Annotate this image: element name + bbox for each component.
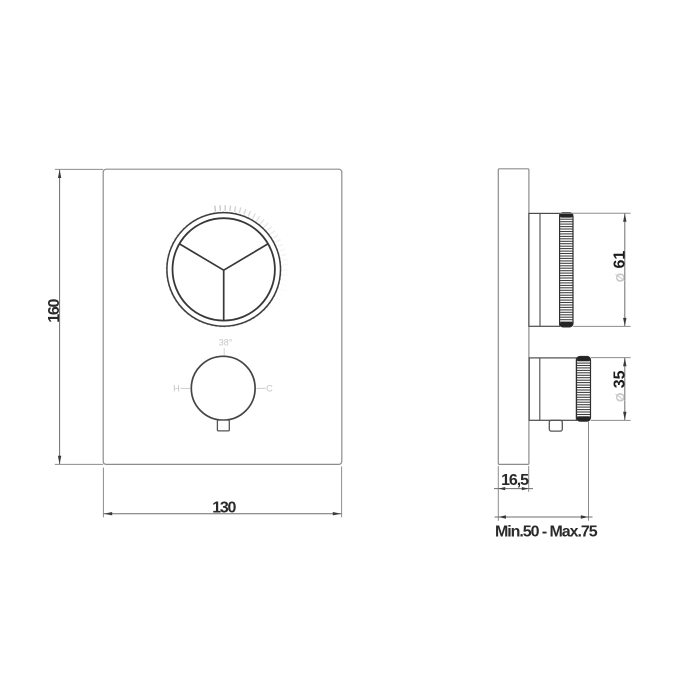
svg-text:Min.50 - Max.75: Min.50 - Max.75 xyxy=(495,524,598,541)
svg-text:H: H xyxy=(173,384,180,394)
svg-text:C: C xyxy=(266,384,273,394)
svg-text:160: 160 xyxy=(46,299,63,323)
svg-text:Ø 61: Ø 61 xyxy=(611,251,628,283)
svg-text:38°: 38° xyxy=(219,338,233,348)
svg-text:16,5: 16,5 xyxy=(501,472,529,489)
svg-text:130: 130 xyxy=(212,500,236,517)
svg-text:Ø 35: Ø 35 xyxy=(611,370,628,402)
